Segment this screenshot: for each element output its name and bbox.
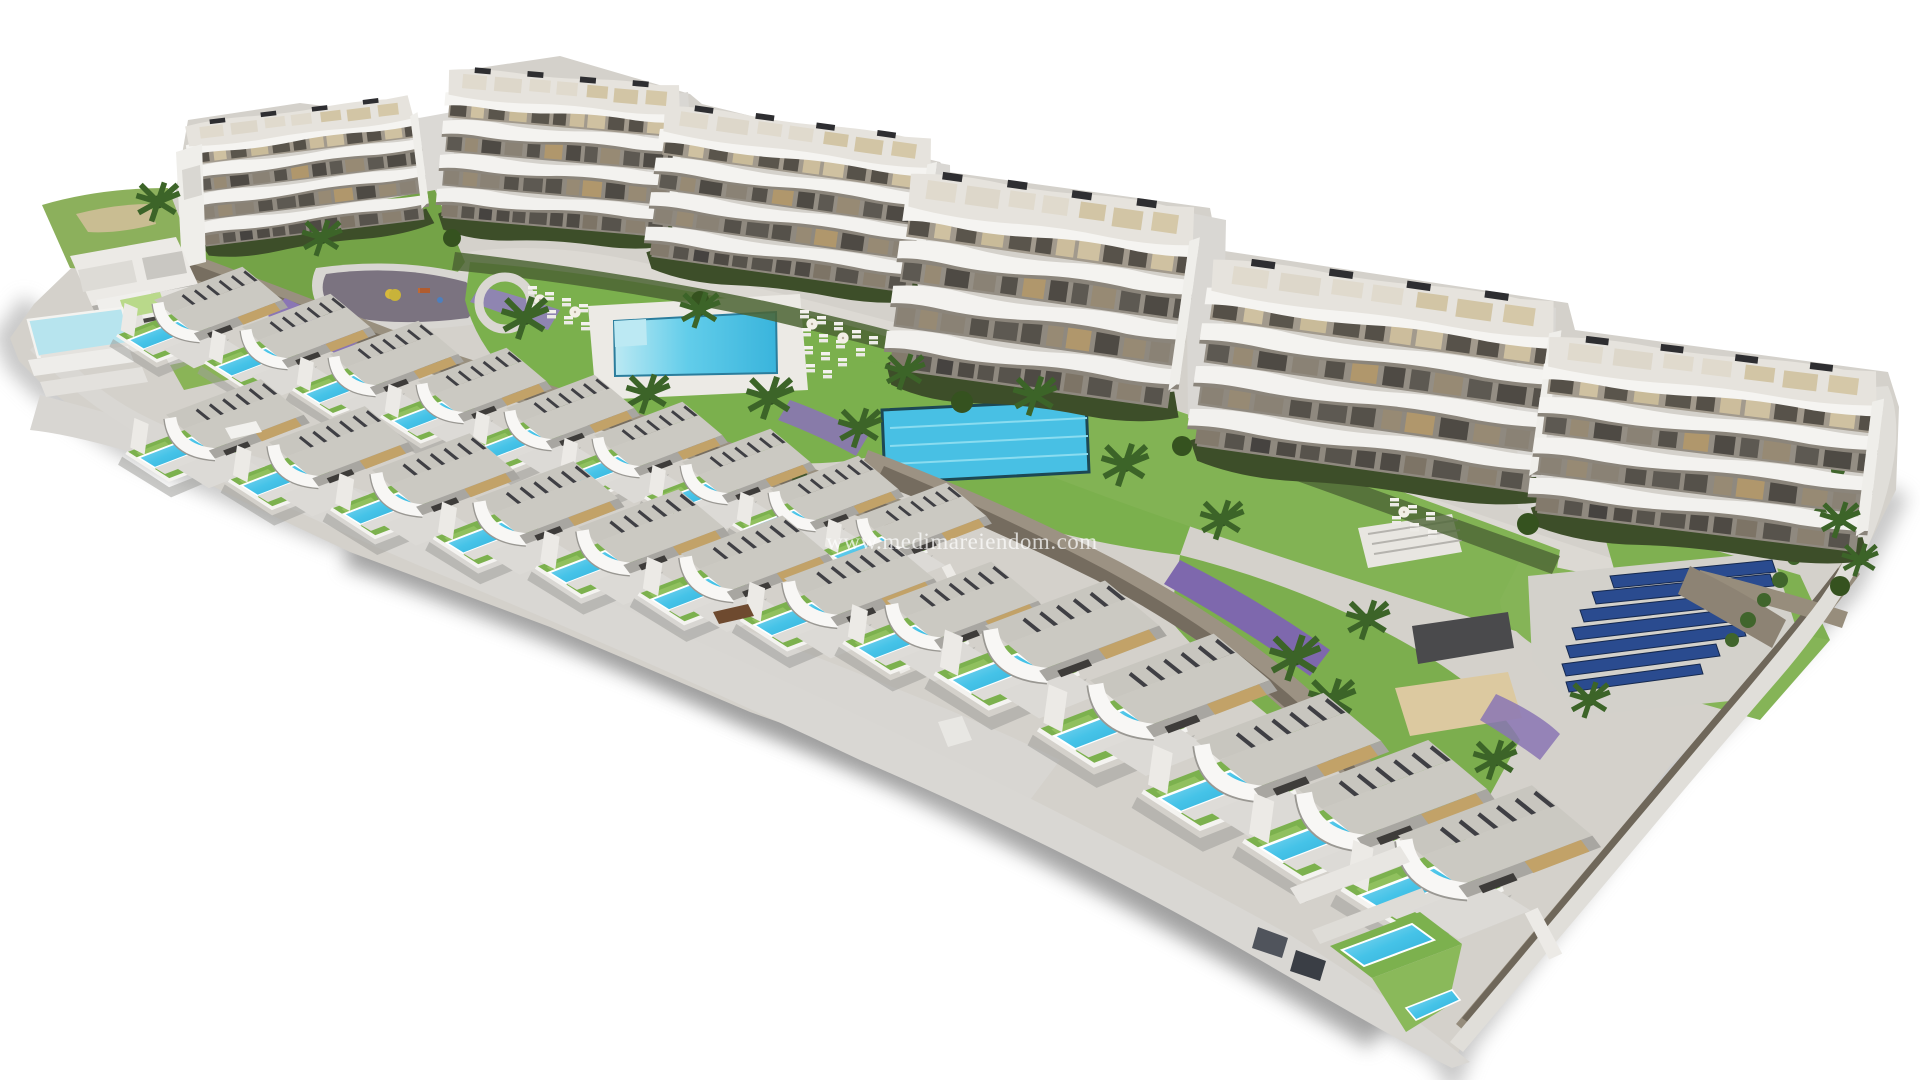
svg-text:www.medimareiendom.com: www.medimareiendom.com	[826, 529, 1097, 554]
